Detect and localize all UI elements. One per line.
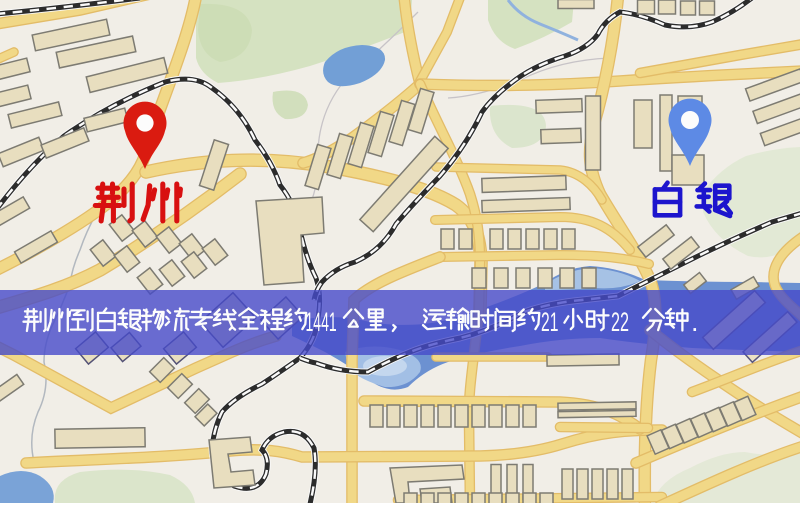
svg-text:.: . [691,307,699,337]
svg-text:21: 21 [541,307,558,338]
svg-text:22: 22 [611,307,629,337]
svg-text:1441: 1441 [306,307,337,337]
